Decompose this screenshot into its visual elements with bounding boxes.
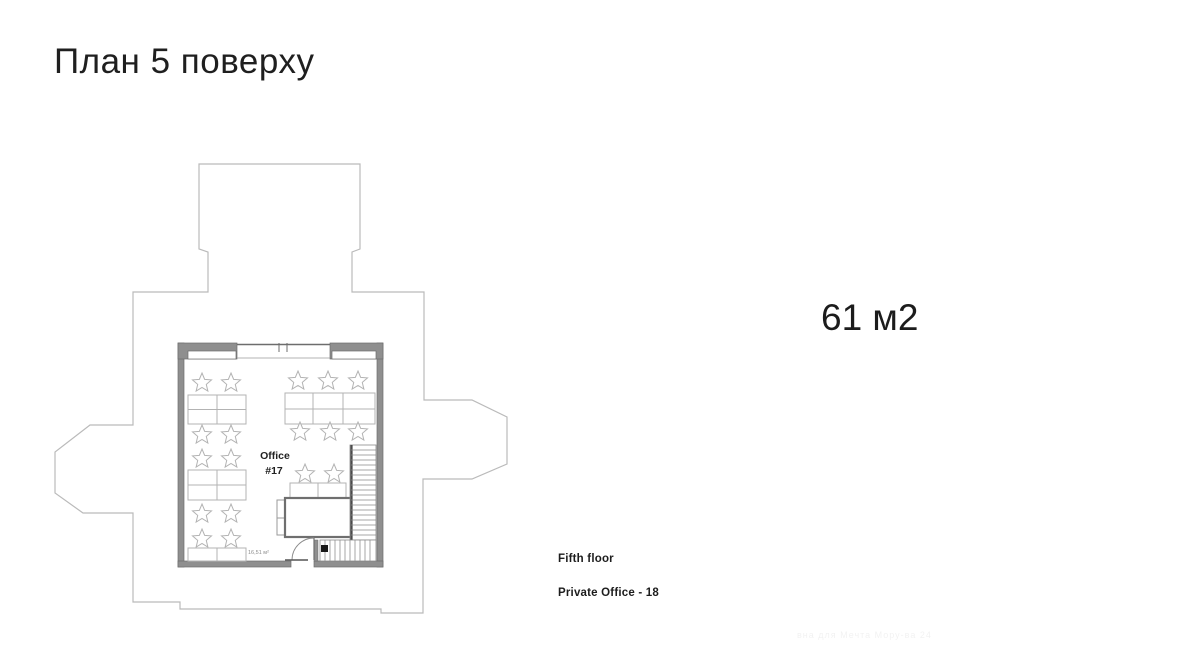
office-label-line1: Office (260, 450, 290, 462)
page: { "page": { "title": "План 5 поверху" },… (0, 0, 1200, 663)
staircase-upper (350, 445, 376, 540)
building-outline (55, 164, 507, 613)
stair-start-marker (321, 545, 328, 552)
office-label-line2: #17 (265, 465, 283, 477)
room-area-note: 16,51 м² (248, 550, 269, 556)
floor-plan: Office #17 16,51 м² (0, 0, 1200, 663)
staircase-lower (314, 540, 376, 561)
conference-table (277, 498, 352, 537)
